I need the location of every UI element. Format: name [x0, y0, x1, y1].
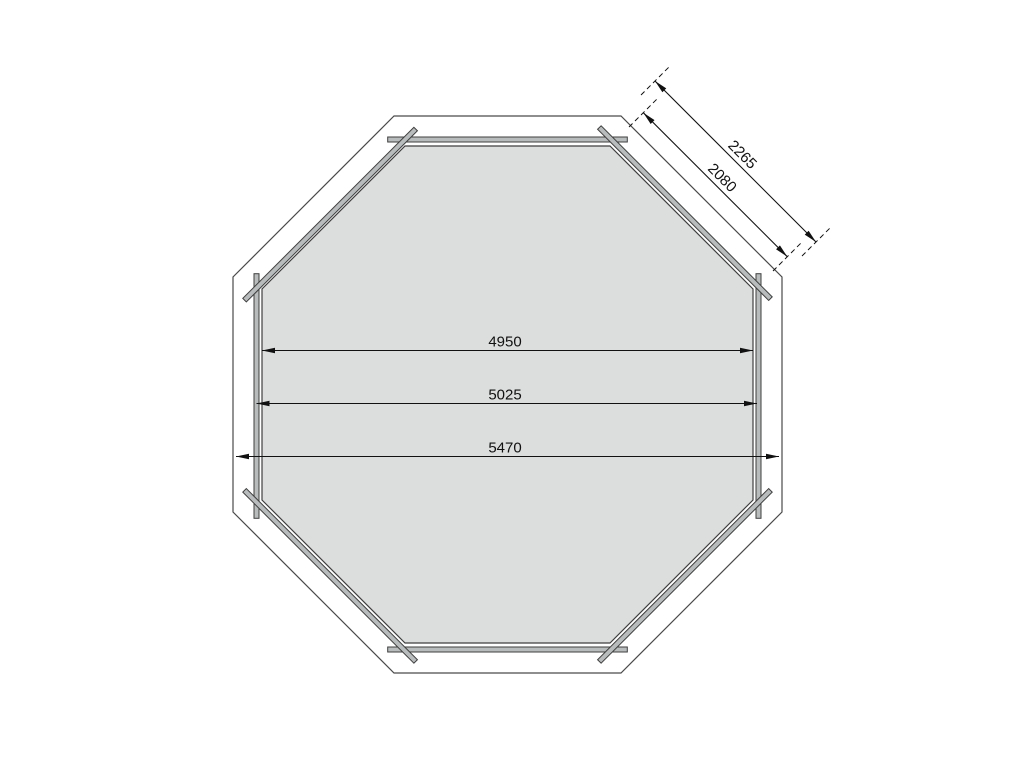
wall-plank-top: [388, 137, 628, 142]
wall-plank-right: [756, 274, 761, 519]
dimension-label-2265: 2265: [724, 137, 760, 173]
wall-plank-bottom: [388, 647, 628, 652]
octagon-plan-drawing: 4950 5025 5470 2265 2080: [0, 0, 1024, 768]
dimension-label-4950: 4950: [488, 334, 521, 351]
dimension-label-5470: 5470: [488, 440, 521, 457]
wall-plank-left: [254, 274, 259, 519]
dimension-label-2080: 2080: [704, 160, 740, 196]
drawing-canvas: 4950 5025 5470 2265 2080: [0, 0, 1024, 768]
dimension-label-5025: 5025: [488, 387, 521, 404]
